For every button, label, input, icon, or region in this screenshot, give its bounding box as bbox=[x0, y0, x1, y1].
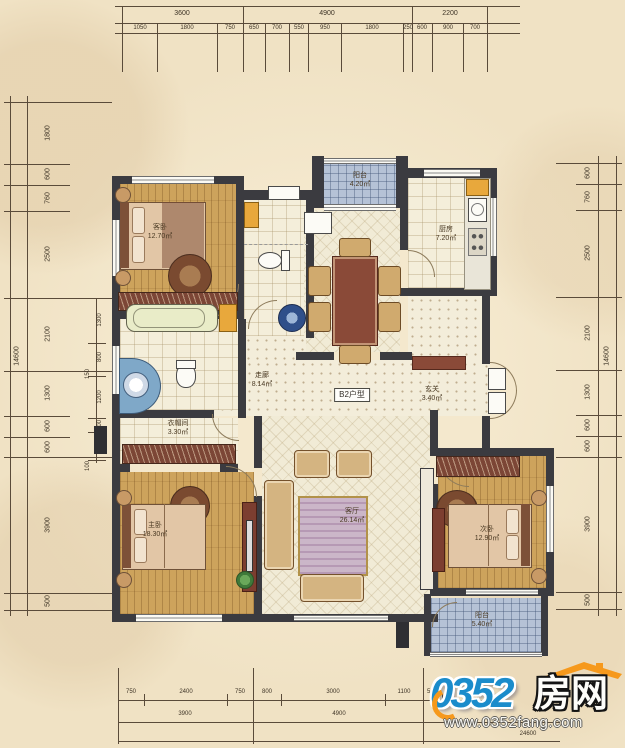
dining-chair bbox=[308, 302, 331, 332]
room-label-foyer: 玄关 3.40㎡ bbox=[422, 386, 443, 403]
toilet bbox=[258, 252, 282, 269]
dining-chair bbox=[378, 266, 401, 296]
sink-basin bbox=[471, 203, 484, 216]
dining-chair bbox=[339, 345, 371, 364]
console-table bbox=[412, 356, 466, 370]
armchair bbox=[294, 450, 330, 478]
window bbox=[112, 220, 120, 276]
room-label-balcony-bottom: 阳台 5.40㎡ bbox=[472, 612, 493, 629]
bath-cabinet bbox=[244, 202, 259, 228]
wall bbox=[380, 352, 412, 360]
window bbox=[430, 652, 542, 657]
toilet-tank bbox=[281, 250, 290, 271]
shower-divider bbox=[244, 244, 308, 245]
bed-headboard bbox=[120, 202, 129, 268]
room-label-bedroom-second: 次卧 12.90㎡ bbox=[475, 526, 500, 543]
entry-door-leaf bbox=[488, 368, 506, 390]
room-label-bedroom-guest: 客卧 12.70㎡ bbox=[148, 224, 173, 241]
wall bbox=[400, 168, 408, 250]
pillow bbox=[134, 537, 147, 563]
floorplan-page: { "plan": { "type_label": "B2户型", "rooms… bbox=[0, 0, 625, 748]
wall bbox=[482, 296, 490, 364]
wall bbox=[296, 352, 334, 360]
stove bbox=[468, 228, 487, 256]
window bbox=[324, 158, 396, 164]
nightstand bbox=[531, 568, 547, 584]
nightstand bbox=[115, 270, 131, 286]
dining-chair bbox=[339, 238, 371, 257]
wall bbox=[541, 594, 548, 656]
toilet-tank bbox=[176, 360, 196, 369]
pillow bbox=[132, 207, 145, 234]
nightstand bbox=[116, 490, 132, 506]
window bbox=[294, 615, 388, 621]
room-label-closet: 衣帽间 3.30㎡ bbox=[168, 420, 189, 437]
logo-url: www.0352fang.com bbox=[444, 714, 583, 731]
sliding-door bbox=[324, 204, 396, 211]
pillow bbox=[506, 509, 519, 534]
loveseat bbox=[300, 574, 364, 602]
wardrobe bbox=[436, 456, 520, 477]
unit-type-label: B2户型 bbox=[334, 388, 370, 402]
logo-name: 房网 bbox=[534, 674, 608, 714]
wall bbox=[238, 319, 246, 418]
nightstand bbox=[531, 490, 547, 506]
cabinet bbox=[304, 212, 332, 234]
window bbox=[424, 169, 480, 177]
floor-foyer bbox=[408, 296, 482, 360]
tv-screen bbox=[246, 520, 253, 572]
dim-label: 600 bbox=[417, 25, 427, 31]
wall bbox=[438, 448, 554, 456]
dining-chair bbox=[308, 266, 331, 296]
wall bbox=[430, 410, 438, 456]
bed-headboard bbox=[122, 504, 131, 568]
window bbox=[136, 614, 222, 622]
bed-headboard bbox=[521, 504, 530, 566]
dim-label: 4900 bbox=[319, 10, 335, 17]
section-marker bbox=[94, 426, 107, 454]
bath-cabinet bbox=[219, 304, 237, 332]
room-label-balcony-top: 阳台 4.20㎡ bbox=[350, 172, 371, 189]
dim-label: 900 bbox=[443, 25, 453, 31]
dining-chair bbox=[378, 302, 401, 332]
dim-label: 2200 bbox=[442, 10, 458, 17]
dim-total: 14600 bbox=[14, 346, 21, 365]
tv-unit bbox=[432, 508, 445, 572]
pillow bbox=[132, 236, 145, 263]
plant bbox=[236, 571, 254, 589]
closet-rod bbox=[122, 444, 236, 464]
sofa bbox=[264, 480, 294, 570]
dim-label: 1050 bbox=[133, 25, 146, 31]
wall bbox=[312, 156, 324, 208]
fridge bbox=[466, 179, 489, 196]
dim-label: 950 bbox=[320, 25, 330, 31]
bathtub-inner bbox=[133, 308, 205, 328]
room-label-living: 客厅 26.14㎡ bbox=[340, 508, 365, 525]
section-marker bbox=[396, 622, 409, 648]
washing-machine bbox=[278, 304, 306, 332]
nightstand bbox=[116, 572, 132, 588]
dim-label: 650 bbox=[249, 25, 259, 31]
wall bbox=[112, 464, 130, 472]
window bbox=[132, 176, 214, 184]
sliding-door bbox=[466, 589, 538, 595]
dim-label: 1800 bbox=[365, 25, 378, 31]
room-label-corridor: 走廊 8.14㎡ bbox=[252, 372, 273, 389]
window bbox=[546, 486, 554, 552]
dim-label: 1800 bbox=[180, 25, 193, 31]
room-label-kitchen: 厨房 7.20㎡ bbox=[436, 226, 457, 243]
wall bbox=[424, 594, 431, 656]
dim-label: 550 bbox=[294, 25, 304, 31]
room-label-bedroom-master: 主卧 18.30㎡ bbox=[143, 522, 168, 539]
dim-label: 3600 bbox=[174, 10, 190, 17]
armchair bbox=[336, 450, 372, 478]
door-arc bbox=[226, 466, 257, 497]
dim-label: 750 bbox=[225, 25, 235, 31]
basin bbox=[123, 372, 149, 398]
wall bbox=[254, 416, 262, 468]
entry-door-leaf bbox=[488, 392, 506, 414]
pillow bbox=[506, 535, 519, 560]
dim-label: 700 bbox=[272, 25, 282, 31]
dim-grand-total: 24600 bbox=[520, 731, 537, 737]
dining-table bbox=[332, 256, 378, 346]
label-box bbox=[268, 186, 300, 200]
dim-label: 250 bbox=[403, 25, 413, 31]
nightstand bbox=[115, 187, 131, 203]
dim-total: 14600 bbox=[604, 346, 611, 365]
dim-label: 700 bbox=[470, 25, 480, 31]
